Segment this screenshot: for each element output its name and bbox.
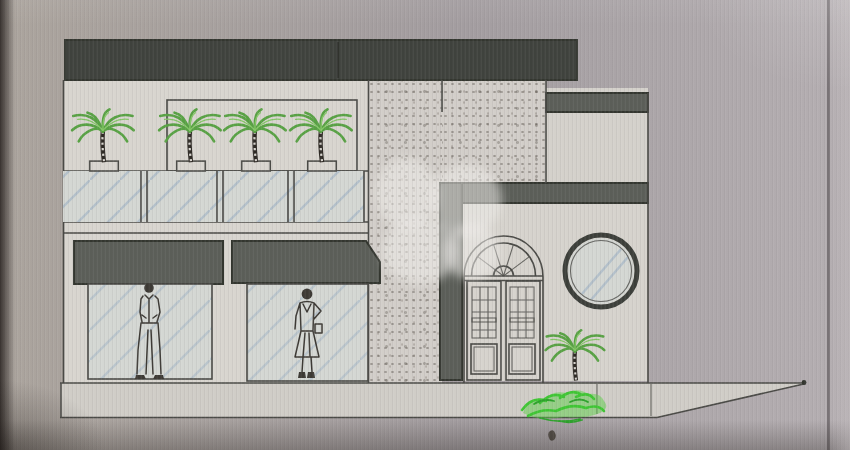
arched-entrance-door (464, 236, 543, 383)
round-window (565, 235, 637, 307)
elevation-drawing (0, 0, 850, 450)
signboard-left (74, 241, 223, 284)
ground-line-end-dot (802, 380, 807, 385)
speck (548, 430, 556, 440)
palm-tree (72, 109, 134, 171)
palm-tree (224, 109, 286, 171)
upper-glass-reflections (63, 171, 364, 222)
screen-photo: { "meta": { "kind": "architectural-front… (0, 0, 850, 450)
sidewalk-plinth (60, 383, 806, 418)
entrance-frame-left-band (440, 183, 462, 380)
palm-tree (159, 109, 221, 171)
ground-palm-tree (546, 330, 605, 380)
upper-floor-line (63, 222, 368, 233)
entrance-frame-top-band (440, 183, 648, 203)
palm-tree (290, 109, 352, 171)
parapet-band (65, 40, 577, 80)
upper-right-band (546, 93, 648, 112)
signboard-right (232, 241, 380, 283)
